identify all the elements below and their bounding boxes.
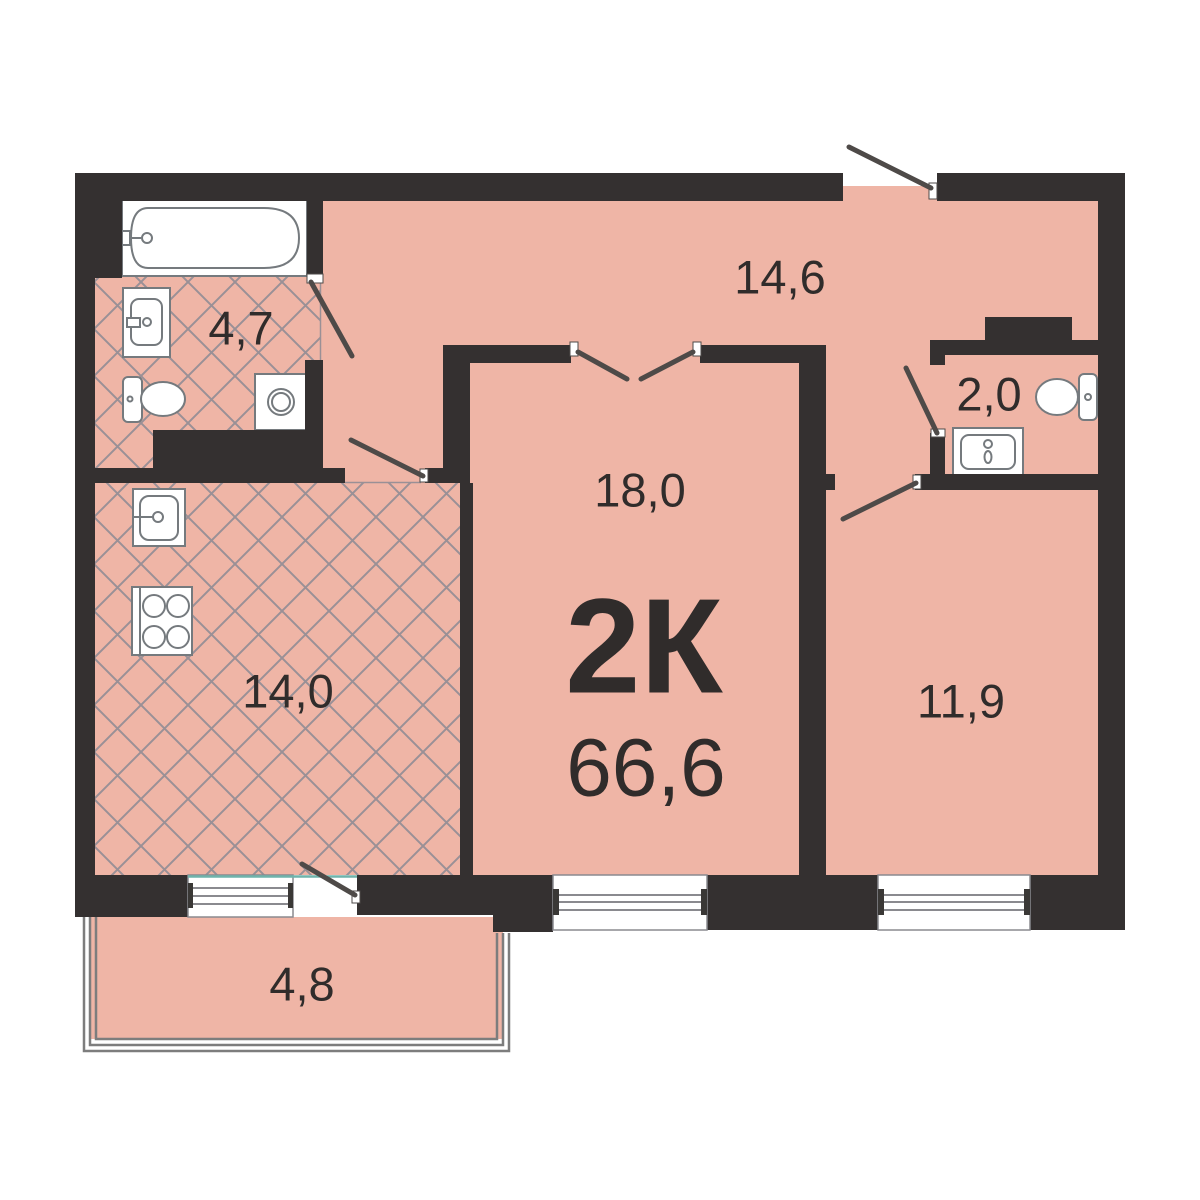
total-area-label: 66,6 (566, 723, 726, 814)
bathroom-area-label: 4,7 (208, 302, 273, 355)
floor-plan: 4,7 14,6 2,0 18,0 14,0 11,9 4,8 2К 66,6 (0, 0, 1200, 1200)
bathroom-sink (123, 288, 170, 357)
washing-machine (255, 374, 307, 430)
wc-area-label: 2,0 (956, 368, 1021, 421)
bedroom-area-label: 11,9 (917, 675, 1005, 728)
balcony-area-label: 4,8 (269, 958, 334, 1011)
kitchen-area-label: 14,0 (242, 665, 333, 718)
entrance-threshold (843, 186, 937, 201)
bathtub (122, 200, 307, 276)
kitchen-sink (133, 489, 185, 546)
entrance-door-leaf (849, 147, 931, 188)
bedroom-window (878, 875, 1030, 930)
apartment-type-label: 2К (565, 571, 723, 722)
living-room-window (553, 875, 707, 930)
vent-shaft (985, 317, 1072, 340)
floor-plan-canvas: 4,7 14,6 2,0 18,0 14,0 11,9 4,8 2К 66,6 (0, 0, 1200, 1200)
wc-sink (953, 428, 1023, 476)
stove (132, 587, 192, 655)
living-room-area-label: 18,0 (594, 464, 685, 517)
hall-area-label: 14,6 (734, 251, 825, 304)
